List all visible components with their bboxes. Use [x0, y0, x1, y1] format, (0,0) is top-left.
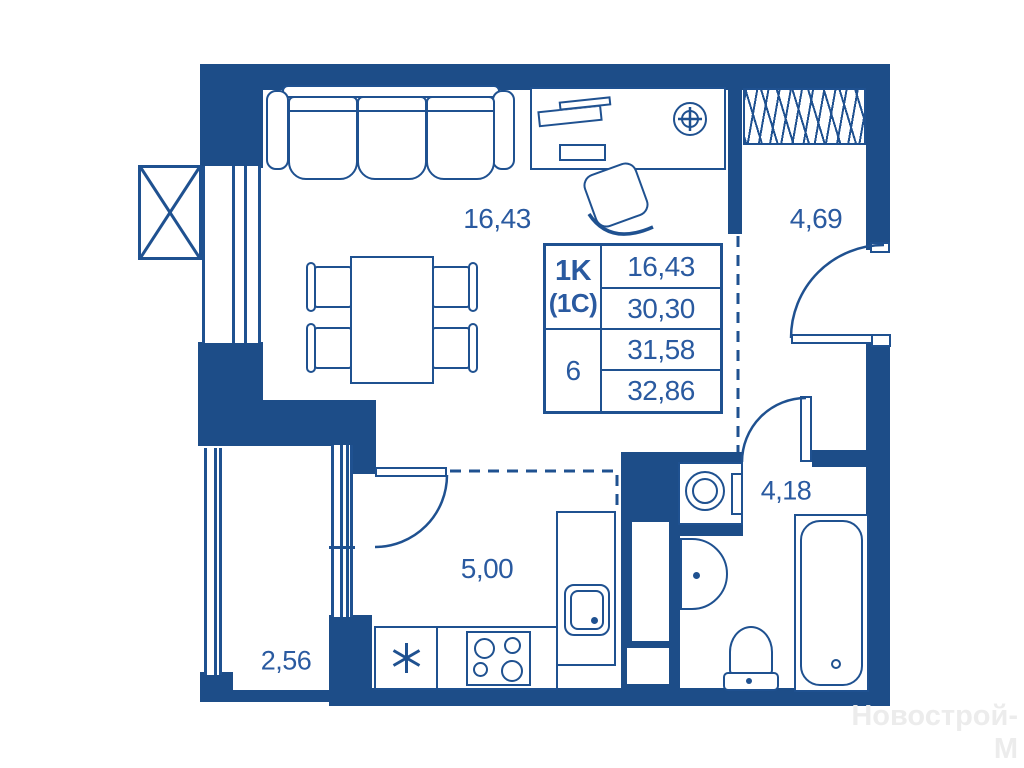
stove-burner [474, 638, 495, 659]
balcony-door-leaf [375, 467, 447, 477]
duct-niche-upper [632, 522, 669, 641]
balcony-door-swing-arc [375, 475, 447, 547]
sofa-cushion [426, 96, 495, 180]
bathroom-area-label: 4,18 [761, 476, 812, 507]
watermark: Новострой-М [828, 700, 1018, 766]
apartment-type: 1K [555, 255, 591, 288]
floor-plan: 16,43 4,69 4,18 5,00 2,56 1K (1C) 16,43 … [0, 0, 1024, 768]
floor-number-cell: 6 [546, 328, 602, 411]
bathroom-faucet-dot [693, 572, 700, 579]
partition-door-sill [329, 546, 355, 549]
zone-boundary-dashed-kitchen [450, 471, 617, 512]
sofa-armrest-right [492, 90, 515, 170]
stove [466, 631, 531, 686]
bathroom-door-swing-arc [742, 398, 806, 462]
bathroom-door-leaf [800, 396, 812, 462]
entrance-door-sill-hinge [871, 334, 891, 347]
area-total-cell: 31,58 [602, 328, 720, 369]
desk-lamp-inner [681, 110, 699, 128]
apartment-subtype: (1C) [549, 289, 598, 319]
toilet-button-dot [746, 678, 752, 684]
bathroom-door-jamb [731, 473, 743, 515]
entrance-door-swing-arc [791, 245, 884, 338]
wall-left-mid [198, 342, 263, 446]
wardrobe [743, 88, 866, 145]
entrance-door-sill-top [870, 242, 890, 253]
bathtub-drain [831, 659, 841, 669]
dining-chair-back [306, 262, 316, 312]
fridge [374, 626, 438, 690]
kitchen-area-label: 5,00 [461, 553, 514, 585]
wall-right-lower [866, 344, 890, 706]
window-living [202, 166, 261, 343]
window-balcony-glass-line [214, 448, 217, 675]
window-balcony-left [204, 448, 222, 675]
window-partition-glass-line [346, 445, 349, 617]
balcony-area-label: 2,56 [261, 646, 312, 677]
area-total-balcony-cell: 32,86 [602, 369, 720, 411]
dining-chair-seat [432, 266, 470, 308]
sofa-armrest-left [266, 90, 289, 170]
living-area-label: 16,43 [463, 203, 531, 235]
sofa-cushion [357, 96, 427, 180]
stove-burner [473, 662, 488, 677]
toilet-bowl [729, 626, 773, 678]
dining-chair-seat [432, 327, 470, 369]
stove-burner [501, 660, 523, 682]
bathroom-sink [680, 538, 728, 610]
desk-monitor-base [559, 144, 606, 161]
dining-chair-back [468, 323, 478, 373]
window-living-glass-line [232, 166, 235, 343]
sofa-cushion [288, 96, 358, 180]
apartment-type-cell: 1K (1C) [546, 246, 602, 328]
kitchen-faucet-dot [591, 617, 598, 624]
duct-niche-lower [627, 648, 669, 684]
wall-room-hall-stub [728, 87, 742, 234]
wall-top-left-block [200, 64, 263, 168]
dining-chair-back [468, 262, 478, 312]
ventilation-shaft-box [138, 165, 202, 260]
washing-machine-drum-inner [692, 478, 718, 504]
wall-balcony-corner [200, 672, 233, 692]
dining-chair-seat [314, 327, 352, 369]
kitchen-sink-basin [570, 590, 604, 630]
stove-burner [504, 637, 521, 654]
window-partition-glass-line [340, 445, 343, 617]
hallway-area-label: 4,69 [790, 203, 843, 235]
window-balcony-partition [331, 445, 353, 617]
dining-chair-seat [314, 266, 352, 308]
area-main-cell: 30,30 [602, 287, 720, 328]
dining-chair-back [306, 323, 316, 373]
window-living-glass-line [244, 166, 247, 343]
apartment-info-table: 1K (1C) 16,43 30,30 6 31,58 32,86 [543, 243, 723, 414]
area-living-cell: 16,43 [602, 246, 720, 287]
wall-bathroom-top-right [812, 450, 890, 467]
wall-balcony-partition-low [329, 615, 372, 692]
dining-table [350, 256, 434, 384]
wall-right-upper [866, 64, 890, 250]
